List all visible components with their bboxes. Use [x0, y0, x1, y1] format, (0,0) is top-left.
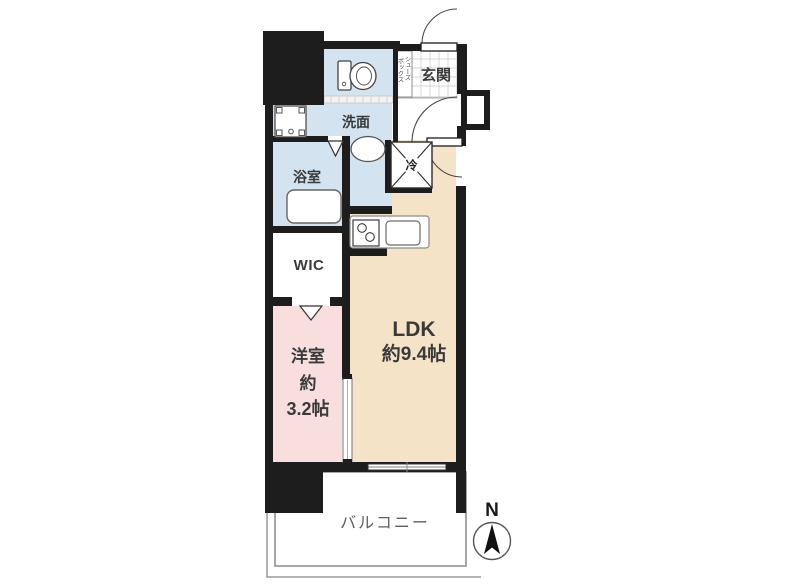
- wall-bath-bottom: [265, 226, 350, 233]
- wall-right-top: [457, 44, 467, 94]
- wash-basin-icon: [351, 137, 385, 162]
- label-washroom: 洗面: [342, 114, 370, 130]
- label-western-room: 洋室: [291, 346, 325, 366]
- wall-wic-bottom-right: [330, 297, 344, 306]
- kitchen-counter-icon: [350, 216, 429, 248]
- refrigerator-space-icon: 冷: [391, 142, 432, 188]
- wall-mid-vertical: [342, 136, 350, 380]
- label-balcony: バルコニー: [340, 515, 430, 532]
- label-western-size: 3.2帖: [286, 398, 329, 419]
- kitchen-sink-icon: [386, 221, 420, 245]
- label-refrigerator: 冷: [405, 158, 417, 173]
- wall-toilet-top: [320, 41, 400, 49]
- wall-column-top-left: [263, 31, 324, 105]
- toilet-door-threshold: [324, 96, 393, 103]
- stove-icon: [353, 220, 379, 246]
- label-shoebox-1: シューズ: [404, 56, 411, 81]
- wall-alcove-bottom: [342, 206, 392, 214]
- wall-block-bottom-left: [265, 462, 323, 513]
- label-bathroom: 浴室: [293, 169, 321, 185]
- meter-box-inner: [467, 96, 484, 124]
- wall-wic-bottom-left: [265, 297, 292, 306]
- floor-plan-image: 冷 玄関 シューズ ボックス 洗面 浴室 WIC 洋室 約 3.2帖 LDK 約…: [0, 0, 800, 586]
- compass-north-label: N: [485, 500, 499, 521]
- hall-door-arc: [412, 97, 457, 142]
- toilet-icon: [338, 61, 376, 90]
- label-genkan: 玄関: [421, 66, 451, 84]
- washing-machine-pan-icon: [275, 106, 306, 137]
- label-ldk: LDK: [392, 318, 435, 341]
- sliding-door: [343, 374, 352, 464]
- entrance-door-leaf: [421, 43, 457, 51]
- label-ldk-size: 約9.4帖: [382, 342, 446, 365]
- label-shoebox-2: ボックス: [397, 58, 404, 83]
- label-wic: WIC: [294, 257, 325, 274]
- wall-left-outer: [265, 100, 273, 465]
- entrance-door-arc: [422, 9, 457, 44]
- balcony-window: [368, 462, 446, 472]
- wall-fridge-left: [385, 140, 391, 192]
- bathtub-icon: [287, 190, 341, 223]
- label-western-approx: 約: [300, 373, 317, 393]
- floor-plan-svg: 冷 玄関 シューズ ボックス 洗面 浴室 WIC 洋室 約 3.2帖 LDK 約…: [0, 0, 800, 586]
- wall-genkan-top-stub: [396, 44, 424, 51]
- compass: N: [474, 500, 511, 560]
